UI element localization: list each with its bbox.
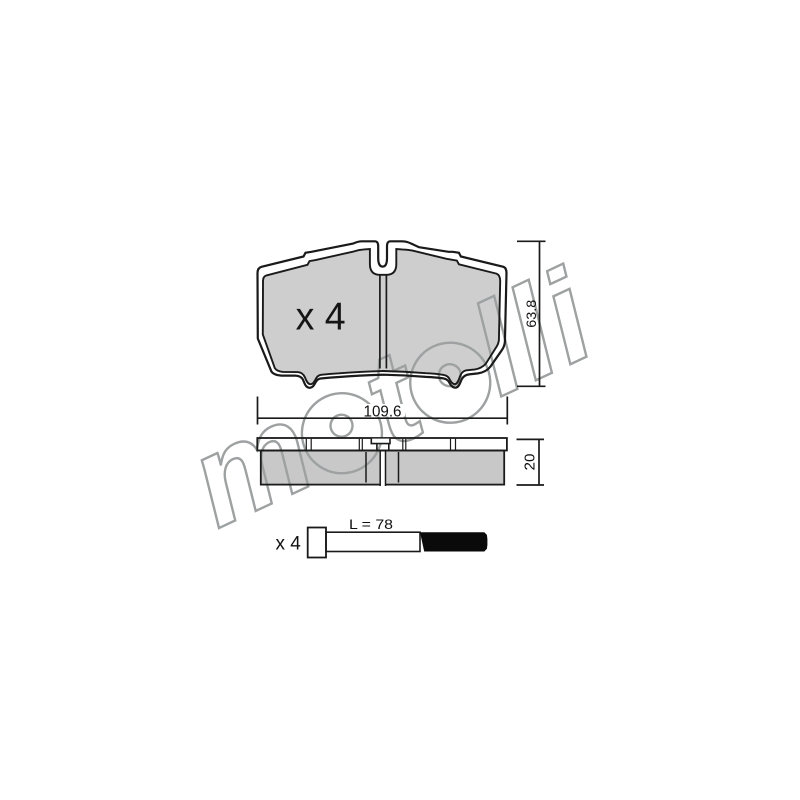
svg-text:63.8: 63.8 [524, 300, 539, 328]
svg-text:L = 78: L = 78 [349, 517, 393, 532]
svg-text:x 4: x 4 [296, 295, 346, 338]
svg-text:x 4: x 4 [276, 534, 302, 555]
svg-text:109.6: 109.6 [364, 404, 402, 421]
svg-text:20: 20 [522, 454, 539, 471]
